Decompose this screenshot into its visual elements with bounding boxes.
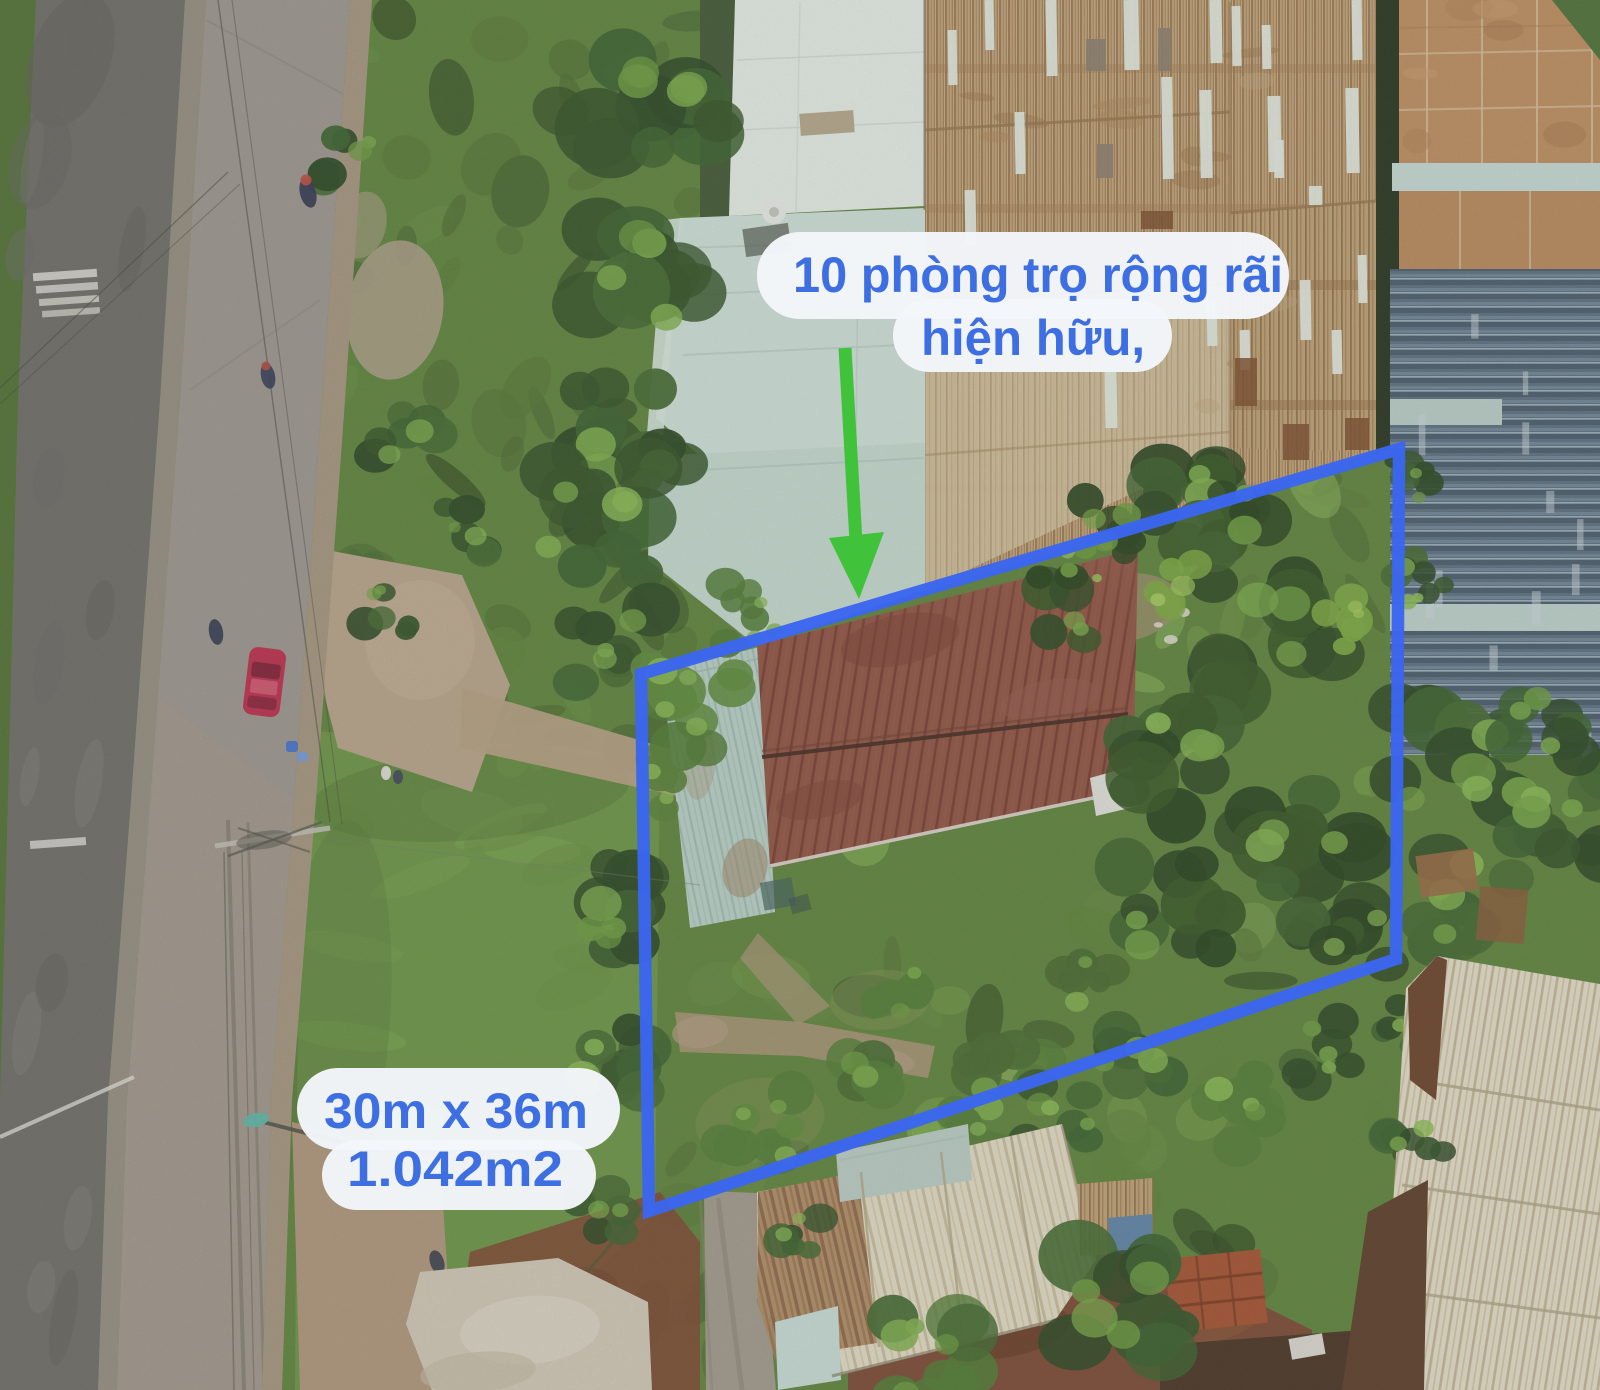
svg-text:1.042m2: 1.042m2 [347,1141,563,1197]
svg-text:10 phòng trọ rộng rãi: 10 phòng trọ rộng rãi [793,247,1283,303]
svg-text:hiện hữu,: hiện hữu, [921,310,1145,366]
svg-text:30m x 36m: 30m x 36m [324,1083,588,1139]
